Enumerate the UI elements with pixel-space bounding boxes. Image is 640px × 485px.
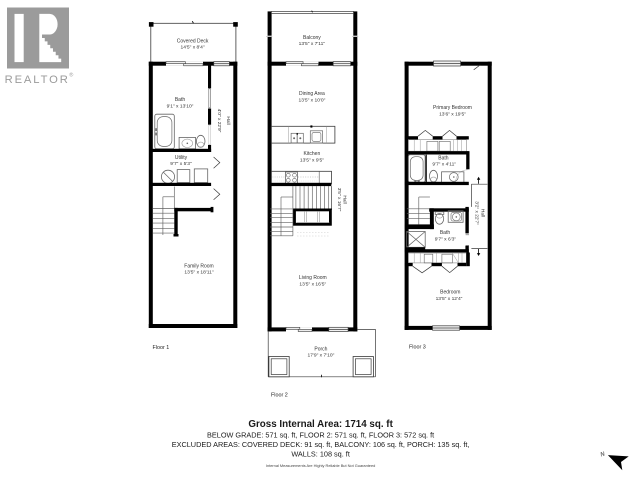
svg-text:REALTOR: REALTOR	[5, 74, 70, 86]
svg-text:Family Room: Family Room	[184, 263, 213, 269]
svg-text:3'2" x 22'7": 3'2" x 22'7"	[473, 201, 479, 225]
svg-text:Balcony: Balcony	[303, 35, 321, 41]
svg-text:13'5" x 16'5": 13'5" x 16'5"	[299, 281, 326, 287]
svg-text:13'5" x 10'0": 13'5" x 10'0"	[298, 97, 325, 103]
svg-text:Gross Internal Area: 1714 sq.: Gross Internal Area: 1714 sq. ft	[248, 419, 393, 430]
svg-text:13'5" x 7'11": 13'5" x 7'11"	[299, 41, 326, 47]
svg-text:Bath: Bath	[175, 97, 186, 103]
svg-text:4'0" x 22'9": 4'0" x 22'9"	[216, 109, 222, 133]
svg-text:WALLS: 108 sq. ft: WALLS: 108 sq. ft	[291, 449, 350, 458]
svg-text:Primary Bedroom: Primary Bedroom	[433, 105, 472, 111]
svg-text:Hall: Hall	[479, 209, 485, 217]
svg-text:Utility: Utility	[175, 155, 188, 161]
svg-text:Floor 3: Floor 3	[409, 345, 426, 351]
svg-text:13'6" x 19'5": 13'6" x 19'5"	[439, 111, 466, 117]
svg-text:9'7" x 4'11": 9'7" x 4'11"	[432, 162, 456, 168]
svg-text:Internal Measurements Are High: Internal Measurements Are Highly Reliabl…	[266, 463, 375, 468]
svg-text:9'7" x 5'3": 9'7" x 5'3"	[170, 161, 192, 167]
svg-text:13'5" x 12'4": 13'5" x 12'4"	[436, 296, 463, 302]
svg-text:9'7" x 6'3": 9'7" x 6'3"	[435, 236, 457, 242]
svg-text:Kitchen: Kitchen	[304, 151, 321, 157]
svg-text:Floor 1: Floor 1	[153, 345, 170, 351]
svg-text:9'1" x 13'10": 9'1" x 13'10"	[167, 103, 194, 109]
svg-text:13'5" x 9'5": 13'5" x 9'5"	[300, 157, 324, 163]
svg-text:®: ®	[69, 72, 73, 79]
svg-text:Bath: Bath	[440, 230, 451, 236]
svg-text:Bedroom: Bedroom	[440, 290, 460, 296]
svg-text:EXCLUDED AREAS: COVERED DECK:: EXCLUDED AREAS: COVERED DECK: 91 sq. ft,…	[172, 440, 470, 449]
svg-text:Hall: Hall	[342, 195, 348, 203]
svg-text:Covered Deck: Covered Deck	[177, 38, 209, 44]
svg-text:13'5" x 18'11": 13'5" x 18'11"	[184, 270, 213, 276]
svg-text:Dining Area: Dining Area	[299, 91, 325, 97]
svg-text:Hall: Hall	[225, 116, 231, 124]
svg-text:Bath: Bath	[438, 155, 449, 161]
svg-text:14'5" x 8'4": 14'5" x 8'4"	[181, 45, 205, 51]
svg-text:Porch: Porch	[314, 346, 327, 352]
svg-text:Floor 2: Floor 2	[271, 393, 288, 399]
svg-text:BELOW GRADE: 571 sq. ft, FLOOR: BELOW GRADE: 571 sq. ft, FLOOR 2: 571 sq…	[207, 430, 434, 439]
svg-text:Living Room: Living Room	[299, 275, 327, 281]
svg-text:17'9" x 7'10": 17'9" x 7'10"	[307, 353, 334, 359]
svg-text:3'5" x 16'7": 3'5" x 16'7"	[336, 188, 342, 212]
